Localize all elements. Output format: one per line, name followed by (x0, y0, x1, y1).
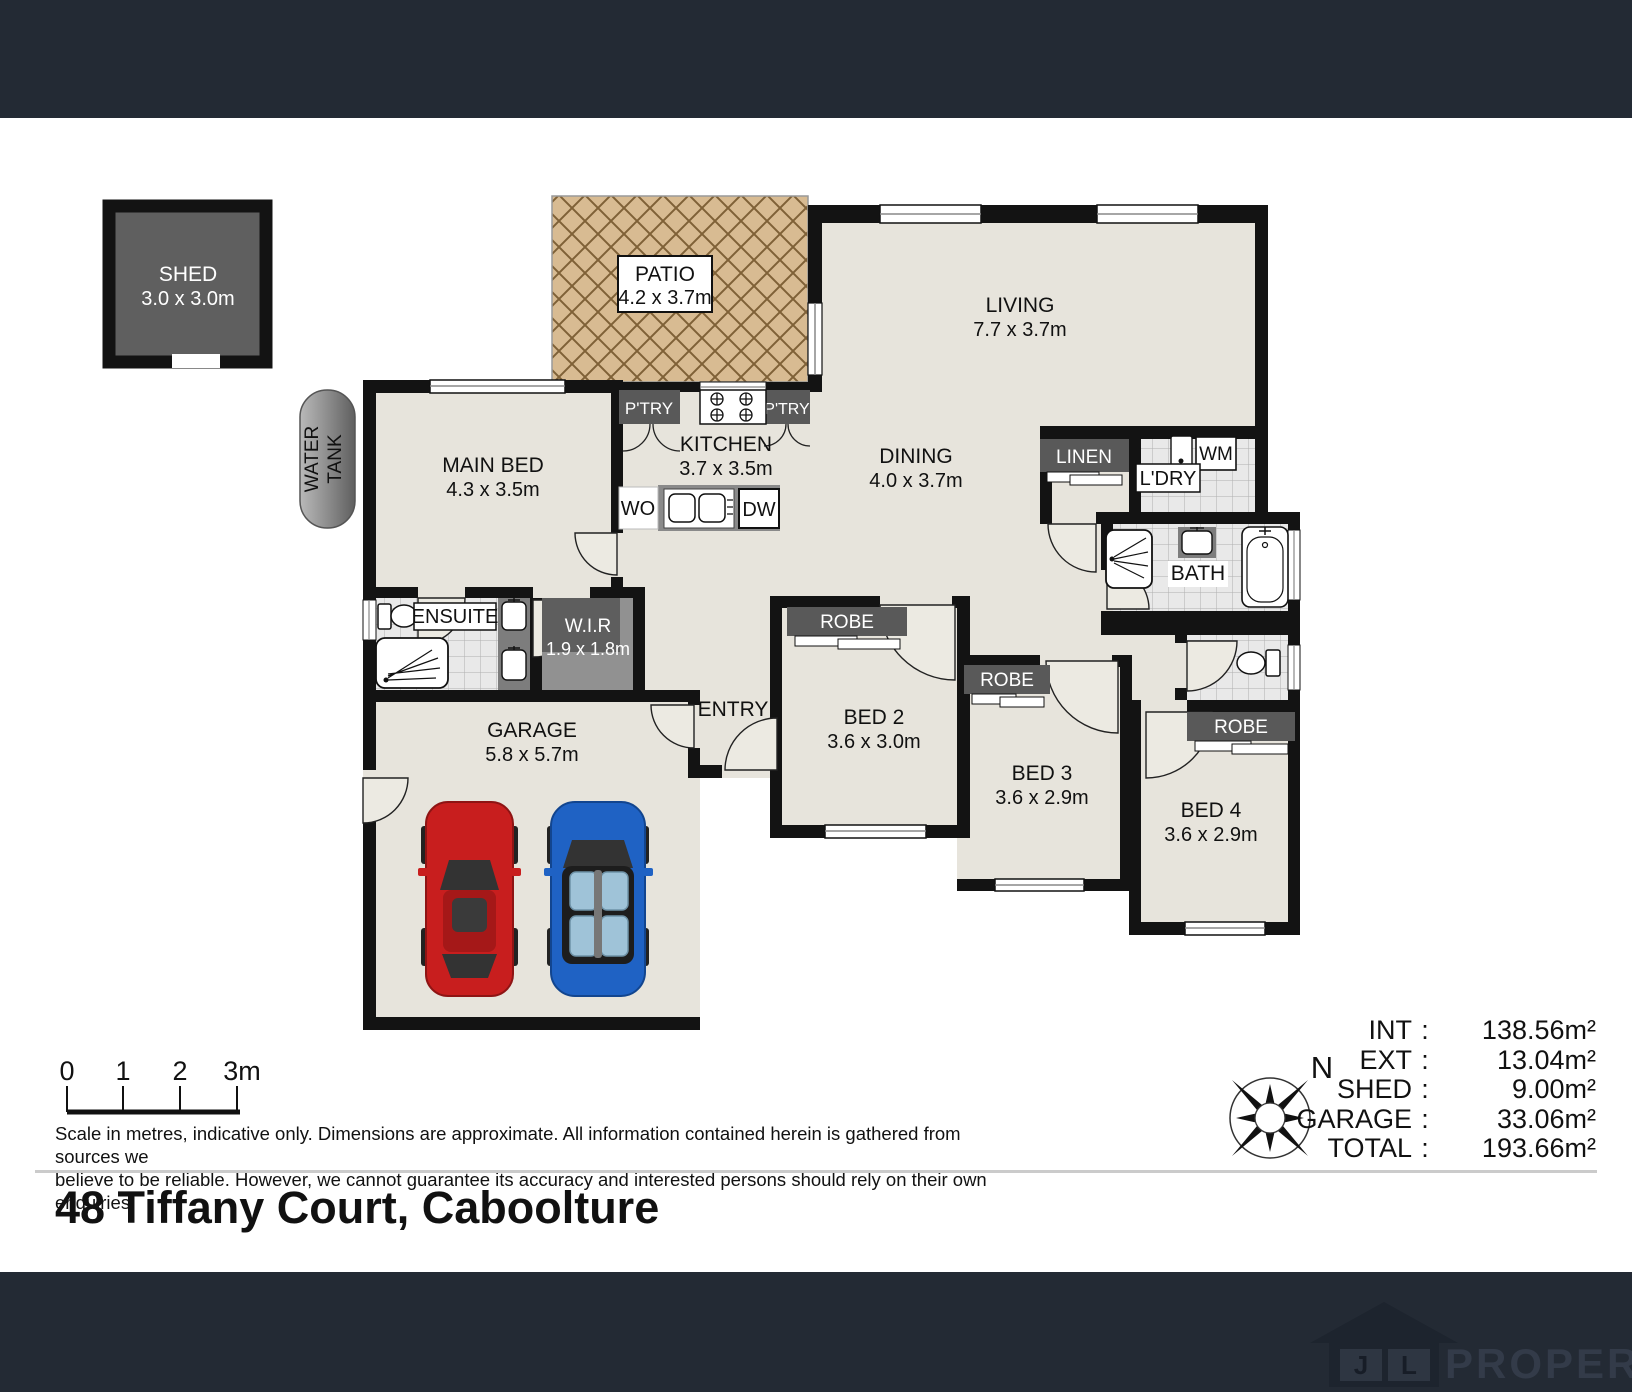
room-living-label: LIVING (986, 294, 1055, 317)
car-red (418, 802, 521, 996)
scale-bar: 0 1 2 3m (59, 1056, 260, 1112)
window-ensuite (363, 600, 376, 640)
stat-row-int: INT : 138.56m² (1296, 1016, 1596, 1046)
disclaimer-line-1: Scale in metres, indicative only. Dimens… (55, 1122, 1015, 1168)
wm-label: WM (1199, 444, 1233, 465)
window-bath (1288, 530, 1300, 600)
shower-icon-ensuite (376, 638, 448, 688)
toilet-icon-wc (1237, 650, 1280, 676)
wall-oven-icon: WO (619, 487, 658, 529)
property-address-title: 48 Tiffany Court, Caboolture (55, 1182, 659, 1234)
room-entry-label: ENTRY (698, 698, 769, 721)
logo-letter-l: L (1388, 1349, 1430, 1381)
room-bed2-label: BED 2 (844, 706, 905, 729)
room-kitchen-label: KITCHEN (680, 433, 772, 456)
room-wir-dims: 1.9 x 1.8m (546, 639, 630, 659)
stove-icon (700, 390, 766, 424)
window-bed2 (825, 825, 926, 838)
stat-row-total: TOTAL : 193.66m² (1296, 1134, 1596, 1164)
room-garage-dims: 5.8 x 5.7m (485, 744, 578, 766)
sink-icon-bath (1178, 527, 1216, 558)
window-wc (1288, 645, 1300, 690)
wc-fixtures (1237, 650, 1280, 676)
floorplan-page: PATIO 4.2 x 3.7m SHED 3.0 x 3.0m WATER T… (0, 0, 1632, 1392)
room-bath-label: BATH (1171, 562, 1225, 585)
stat-row-ext: EXT : 13.04m² (1296, 1046, 1596, 1076)
robe-bed3: ROBE (964, 665, 1050, 707)
stat-value: 9.00m² (1438, 1075, 1596, 1105)
room-bed4-dims: 3.6 x 2.9m (1164, 824, 1257, 846)
stat-label: SHED (1296, 1075, 1412, 1105)
area-summary-table: INT : 138.56m² EXT : 13.04m² SHED : 9.00… (1296, 1016, 1596, 1164)
room-main-bed-dims: 4.3 x 3.5m (446, 479, 539, 501)
stat-label: INT (1296, 1016, 1412, 1046)
stat-value: 138.56m² (1438, 1016, 1596, 1046)
agency-logo: J L PROPERTY (1305, 1300, 1632, 1392)
car-blue (544, 802, 653, 996)
stat-sep: : (1412, 1134, 1438, 1164)
sink-icon-ensuite-2 (502, 646, 526, 680)
logo-house-body-icon: J L (1329, 1343, 1439, 1387)
patio-area: PATIO 4.2 x 3.7m (552, 196, 808, 382)
shower-icon-bath (1106, 530, 1152, 588)
window-main-bed (430, 380, 565, 393)
robe-bed3-label: ROBE (980, 670, 1034, 691)
room-bed2-dims: 3.6 x 3.0m (827, 731, 920, 753)
divider-line (35, 1170, 1597, 1173)
stat-sep: : (1412, 1016, 1438, 1046)
dishwasher-icon: DW (739, 489, 779, 528)
stat-label: TOTAL (1296, 1134, 1412, 1164)
bathtub-icon (1242, 527, 1288, 607)
room-garage-label: GARAGE (487, 719, 577, 742)
logo-house-roof-icon (1310, 1302, 1458, 1343)
room-shed-label: SHED (159, 263, 217, 286)
laundry-tub-icon (1171, 436, 1192, 468)
room-dining-label: DINING (879, 445, 953, 468)
room-bed3-dims: 3.6 x 2.9m (995, 787, 1088, 809)
water-tank-label-1: WATER (302, 426, 323, 493)
room-patio-label: PATIO (635, 263, 695, 286)
room-shed-dims: 3.0 x 3.0m (141, 288, 234, 310)
window-living-2 (1097, 205, 1198, 223)
room-living-dims: 7.7 x 3.7m (973, 319, 1066, 341)
linen-label: LINEN (1056, 447, 1112, 468)
stat-label: EXT (1296, 1046, 1412, 1076)
robe-bed2-label: ROBE (820, 612, 874, 633)
scale-tick-0: 0 (59, 1056, 74, 1086)
washing-machine-icon: WM (1196, 437, 1236, 470)
window-patio-door (808, 303, 822, 375)
stat-value: 33.06m² (1438, 1105, 1596, 1135)
window-living-1 (880, 205, 981, 223)
water-tank: WATER TANK (300, 390, 355, 528)
room-bed3-label: BED 3 (1012, 762, 1073, 785)
stat-value: 193.66m² (1438, 1134, 1596, 1164)
robe-bed4: ROBE (1187, 712, 1295, 754)
pantry-right: P'TRY (764, 390, 810, 424)
linen-closet: LINEN (1040, 439, 1129, 485)
scale-tick-3: 3m (223, 1056, 261, 1086)
stat-label: GARAGE (1296, 1105, 1412, 1135)
logo-letter-j: J (1340, 1349, 1382, 1381)
stat-row-shed: SHED : 9.00m² (1296, 1075, 1596, 1105)
sink-icon-ensuite-1 (502, 598, 526, 630)
room-dining-dims: 4.0 x 3.7m (869, 470, 962, 492)
scale-tick-2: 2 (172, 1056, 187, 1086)
scale-tick-1: 1 (115, 1056, 130, 1086)
robe-bed2: ROBE (787, 607, 907, 649)
wo-label: WO (621, 498, 655, 520)
window-bed3 (995, 879, 1084, 891)
window-bed4 (1185, 922, 1265, 935)
pantry-left: P'TRY (619, 390, 680, 424)
water-tank-label-2: TANK (325, 434, 346, 484)
stat-sep: : (1412, 1075, 1438, 1105)
room-ensuite-label: ENSUITE (412, 606, 499, 628)
room-kitchen-dims: 3.7 x 3.5m (679, 458, 772, 480)
shed-door (172, 354, 220, 368)
room-ldry-label: L'DRY (1140, 468, 1197, 490)
stat-value: 13.04m² (1438, 1046, 1596, 1076)
stat-sep: : (1412, 1046, 1438, 1076)
room-main-bed-label: MAIN BED (442, 454, 544, 477)
robe-bed4-label: ROBE (1214, 717, 1268, 738)
ptry-left-label: P'TRY (625, 399, 673, 418)
shed: SHED 3.0 x 3.0m (109, 206, 266, 368)
stat-row-garage: GARAGE : 33.06m² (1296, 1105, 1596, 1135)
wir-room: W.I.R 1.9 x 1.8m (542, 598, 633, 690)
dw-label: DW (742, 499, 775, 521)
logo-brand-text: PROPERTY (1445, 1340, 1632, 1388)
kitchen-sink-icon (664, 489, 734, 528)
stat-sep: : (1412, 1105, 1438, 1135)
room-wir-label: W.I.R (565, 616, 611, 637)
room-bed4-label: BED 4 (1181, 799, 1242, 822)
ptry-right-label: P'TRY (764, 401, 810, 418)
room-patio-dims: 4.2 x 3.7m (618, 287, 711, 309)
